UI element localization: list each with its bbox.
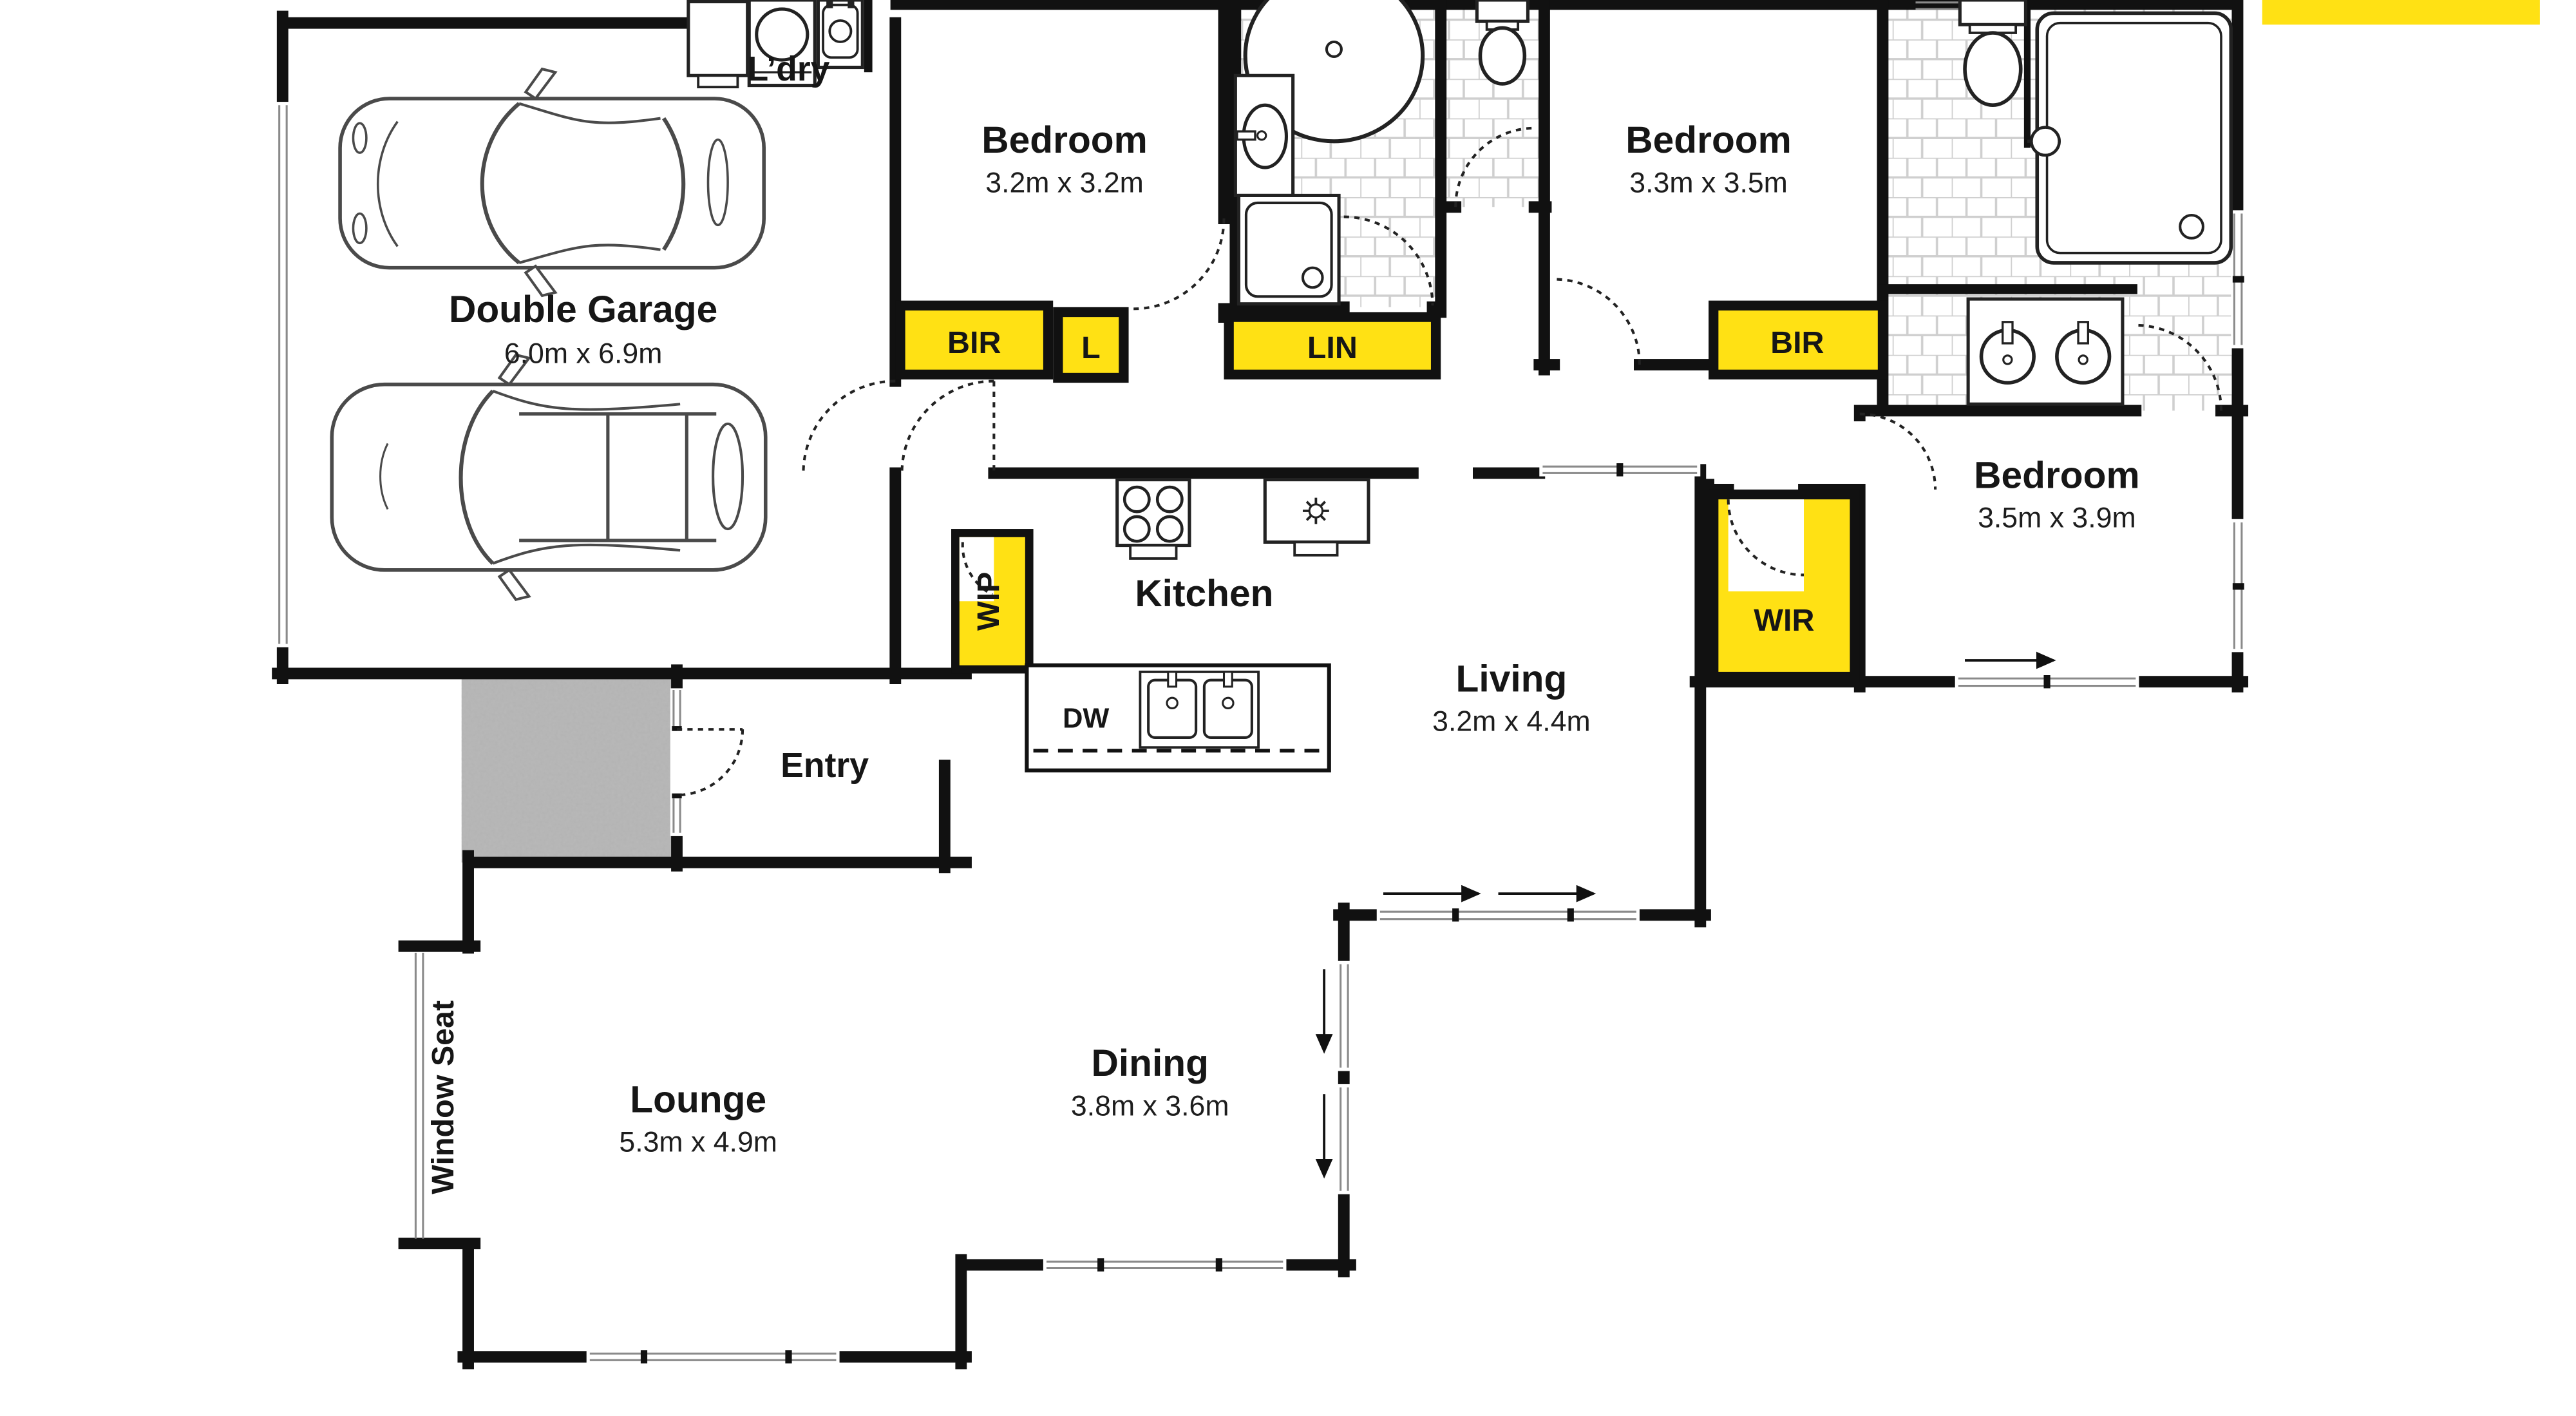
lounge-dims: 5.3m x 4.9m [619,1126,777,1158]
bir2-label: BIR [1770,325,1824,360]
kitchen-label: Kitchen [1135,573,1273,615]
double-sink-icon [1140,672,1258,747]
kitchen-fixtures: DW [1027,480,1368,770]
lin-label: LIN [1307,330,1358,365]
wir-closet: WIR [1709,490,1860,682]
cooktop-icon [1117,480,1189,559]
lounge-label: Lounge [630,1078,766,1120]
shower-icon [2027,13,2231,263]
bir2-closet: BIR [1709,301,1888,379]
lounge-bottom-window [587,1350,840,1363]
bedroom3-dims: 3.5m x 3.9m [1978,502,2136,534]
bedroom3-label: Bedroom [1974,454,2140,496]
laundry-bench [688,2,748,76]
bedroom2-dims: 3.3m x 3.5m [1629,167,1788,198]
bedroom2-label: Bedroom [1625,119,1792,161]
bedroom2-door-arc [1554,279,1640,365]
laundry-bench-drawer [698,75,737,87]
living-label: Living [1456,658,1567,700]
dining-bottom-window [1043,1258,1287,1271]
car-mirror [526,69,555,99]
lin-closet: LIN [1224,312,1441,379]
bay-window [415,953,422,1239]
garage-cars [332,69,765,600]
floor-plan: BIR L LIN BIR WIR WIP [0,0,2576,1416]
garage-door [276,102,289,647]
dining-dims: 3.8m x 3.6m [1071,1090,1229,1122]
car-mirror [500,570,529,600]
master-bottom-window [1955,660,2139,688]
car-icon [340,69,764,296]
linen-small-closet: L [1053,307,1128,383]
dining-label: Dining [1091,1042,1208,1084]
entry-label: Entry [781,747,869,785]
garage-label: Double Garage [449,289,717,330]
floor-plan-canvas: BIR L LIN BIR WIR WIP [0,0,2576,1416]
oven-icon [1265,480,1368,555]
living-dims: 3.2m x 4.4m [1432,706,1591,738]
hall-kitchen-door-arc [902,381,994,474]
dishwasher-label: DW [1063,703,1109,734]
bedroom1-door-arc [1133,218,1224,309]
shower-icon [1238,195,1339,303]
garage-hall-door-arc [803,381,895,474]
toilet-icon [1960,0,2025,105]
master-side-window [2231,519,2246,653]
bedroom1-label: Bedroom [981,119,1148,161]
bedroom1-dims: 3.2m x 3.2m [985,167,1144,198]
wir-label: WIR [1754,603,1814,638]
car-icon [332,355,765,600]
entry-porch [462,678,676,863]
bir1-label: BIR [947,325,1001,360]
shower-head-icon [2031,128,2059,155]
linen-small-label: L [1081,330,1101,365]
porch-texture [462,678,676,863]
laundry-wall-stub [864,0,873,72]
kitchen-top-window [1539,463,1700,476]
ensuite-window [2231,210,2246,348]
vanity-sink-icon [1235,75,1293,195]
garage-dims: 6.0m x 6.9m [504,338,663,370]
window-seat-label: Window Seat [426,1000,460,1194]
living-bottom-window [1377,894,1640,921]
bir1-closet: BIR [895,301,1053,379]
island-bench: DW [1027,665,1329,770]
toilet-icon [1477,0,1528,84]
double-vanity-icon [1968,299,2123,404]
wip-pantry: WIP [951,529,1034,673]
master-door-arc [1860,414,1935,490]
brand-bar [2262,0,2540,24]
wip-label: WIP [971,572,1006,631]
closets: BIR L LIN BIR WIR WIP [895,301,1888,682]
wc-fixtures [1477,0,1528,84]
laundry-label: L’dry [747,50,829,88]
entry-sidelights [670,688,683,836]
entry-door-arc [677,729,743,795]
